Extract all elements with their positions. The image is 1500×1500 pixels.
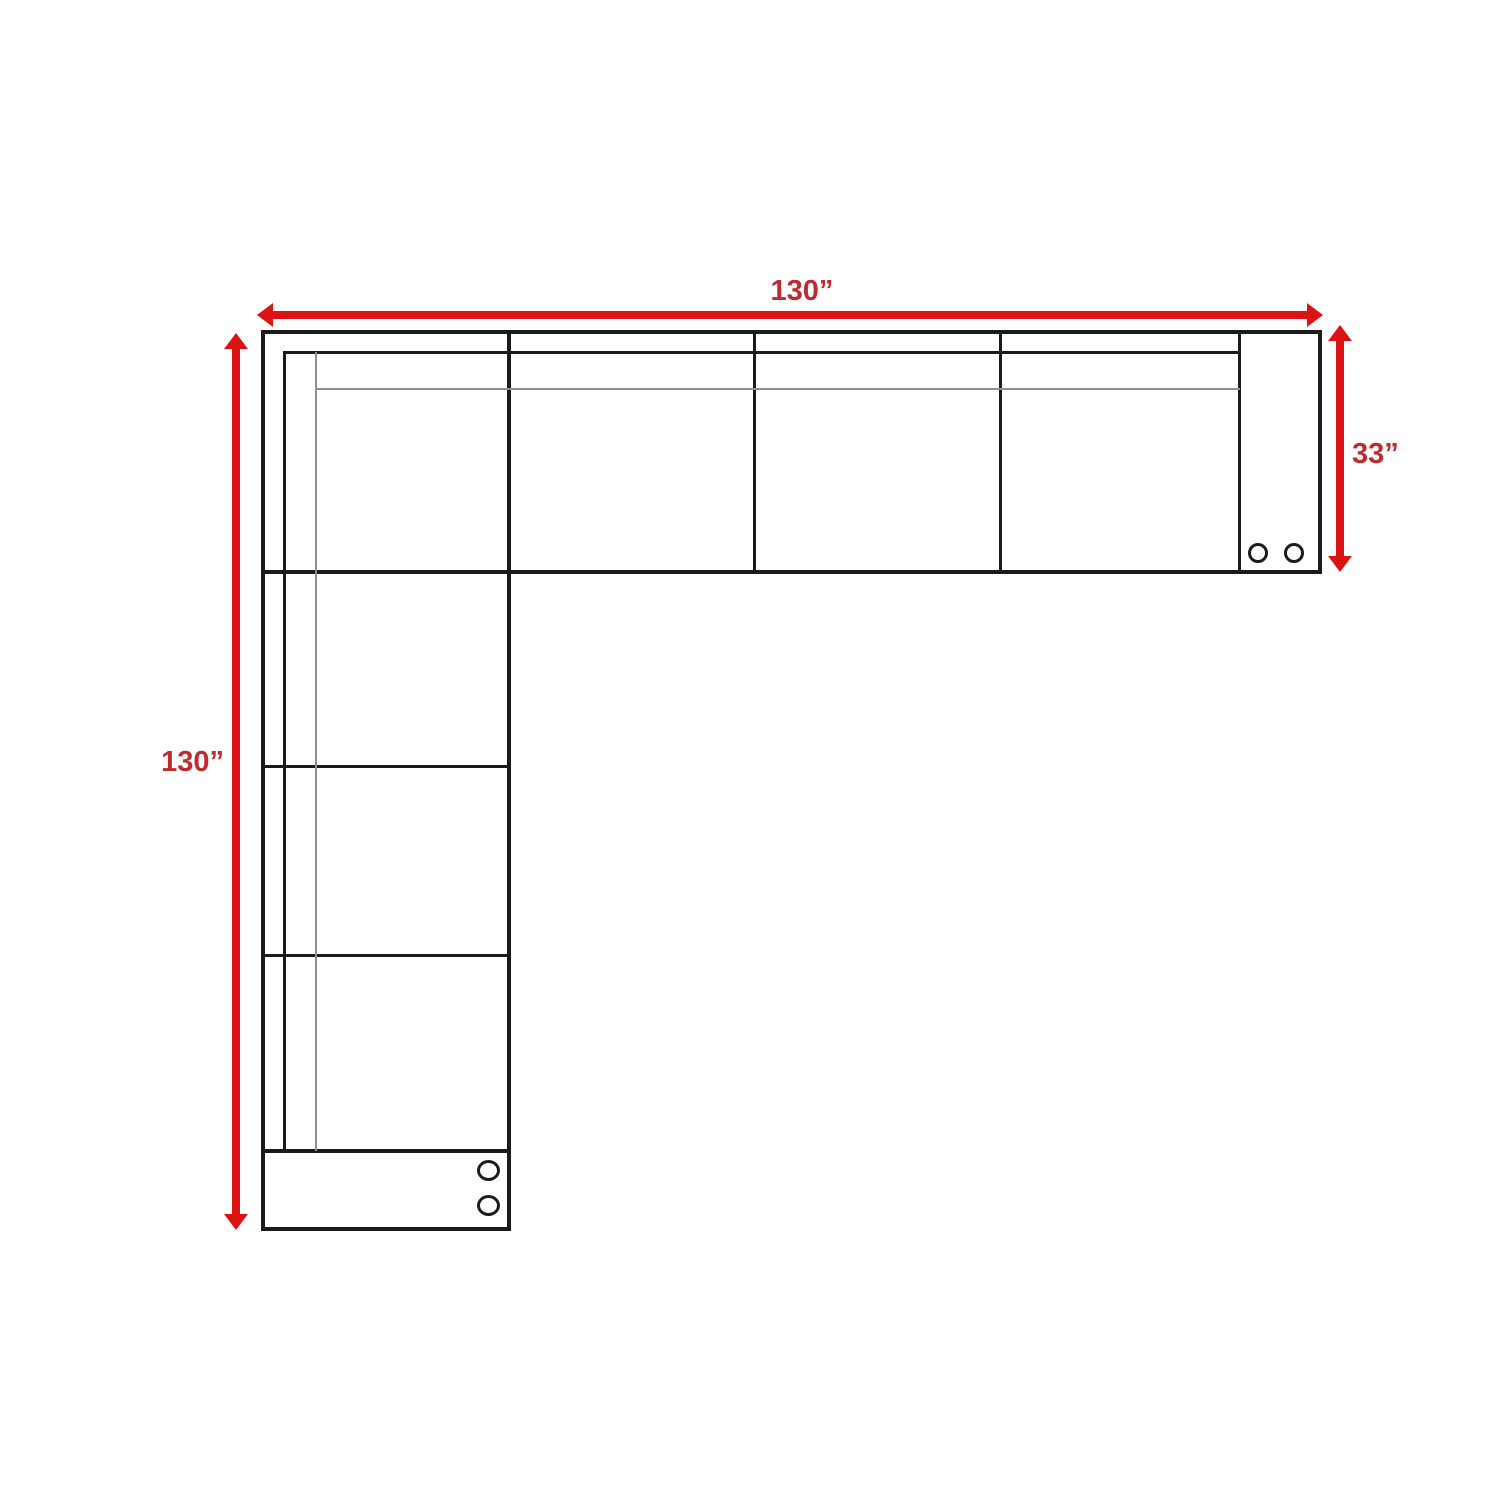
arrowhead-right-icon [1307, 303, 1323, 327]
dimension-arrow-left [224, 333, 248, 1230]
dimension-label-top: 130” [702, 276, 902, 306]
dimension-arrow-right [1328, 325, 1352, 572]
cup-holder-circle [1284, 543, 1304, 563]
arrowhead-down-icon [224, 1214, 248, 1230]
backrest-line-top [283, 351, 1241, 354]
seat-divider-horizontal-1 [261, 765, 511, 768]
cup-holder-circle [477, 1160, 500, 1181]
sofa-vertical-arm-outline [261, 330, 511, 1231]
cup-holder-circle [477, 1195, 500, 1216]
seat-divider-vertical-2 [999, 330, 1002, 574]
seat-edge-line-top [315, 388, 1240, 390]
cup-holder-circle [1248, 543, 1268, 563]
arrow-shaft [1336, 338, 1344, 559]
dimension-label-left: 130” [24, 747, 224, 777]
arrow-shaft [232, 346, 240, 1217]
dimension-label-right: 33” [1352, 439, 1399, 469]
arrowhead-down-icon [1328, 556, 1352, 572]
right-arm-divider [1238, 330, 1241, 574]
seat-divider-vertical-1 [753, 330, 756, 574]
seat-edge-line-left [315, 352, 317, 1151]
arrow-shaft [270, 311, 1310, 319]
backrest-line-left [283, 351, 286, 1151]
bottom-arm-divider [261, 1149, 511, 1153]
seat-divider-horizontal-2 [261, 954, 511, 957]
diagram-canvas: 130” 130” 33” [0, 0, 1500, 1500]
